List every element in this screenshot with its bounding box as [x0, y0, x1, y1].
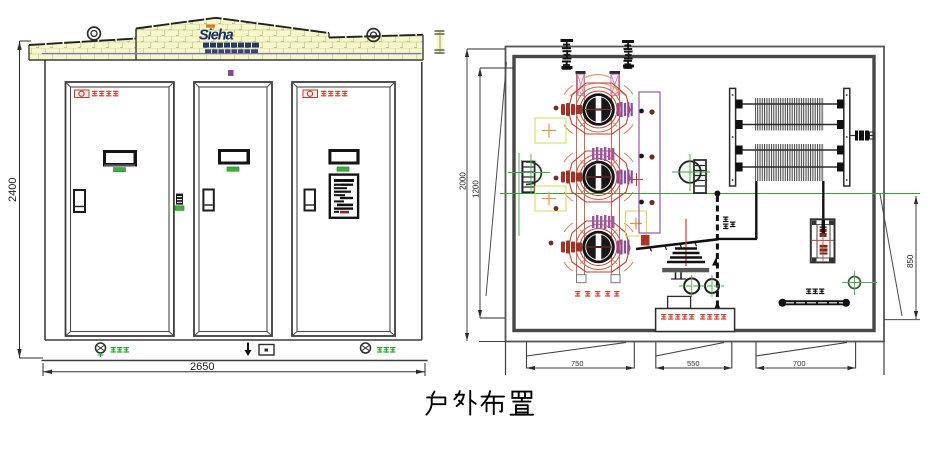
svg-text:2650: 2650	[190, 361, 214, 373]
svg-text:750: 750	[571, 359, 584, 368]
svg-text:1200: 1200	[472, 180, 481, 198]
svg-text:2400: 2400	[7, 178, 19, 202]
svg-text:700: 700	[793, 359, 806, 368]
svg-text:850: 850	[906, 254, 915, 268]
svg-text:2000: 2000	[459, 172, 468, 190]
svg-text:550: 550	[687, 359, 700, 368]
svg-text:Sieha: Sieha	[199, 28, 234, 44]
